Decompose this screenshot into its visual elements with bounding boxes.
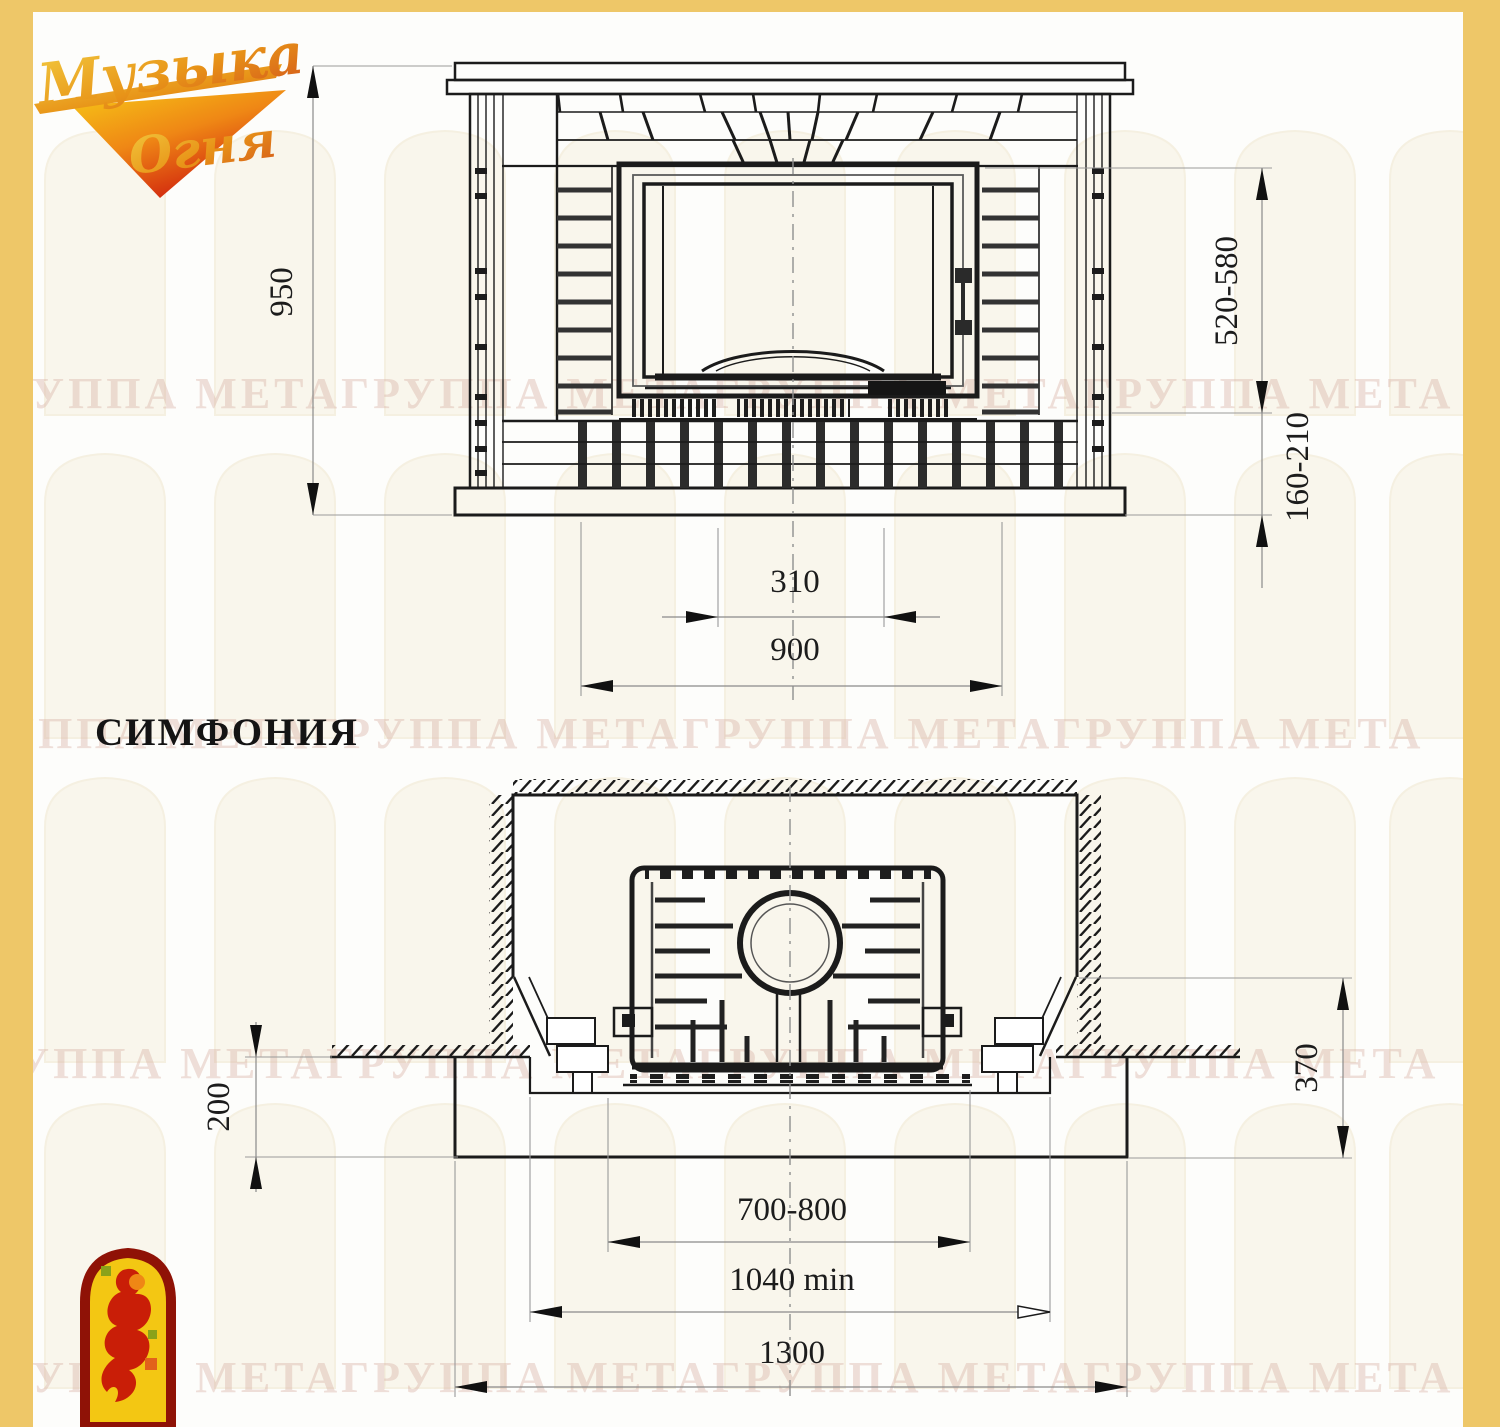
dim-body-width: 900 — [770, 632, 820, 668]
dim-hearth-front-depth: 200 — [201, 1082, 237, 1132]
footer-arch-logo — [85, 1253, 171, 1427]
dim-base-zone-height: 160-210 — [1280, 412, 1316, 522]
border-strip-right — [1463, 0, 1500, 1427]
vent-grille — [619, 397, 977, 419]
ash-lip — [868, 381, 946, 395]
dim-niche-min-width: 1040 min — [729, 1262, 855, 1298]
wall-hatch-top — [513, 779, 1077, 795]
dim-opening-width: 310 — [770, 564, 820, 600]
watermark-text: ГРУППА МЕТАГРУППА МЕТАГРУППА МЕТАГРУППА … — [0, 1353, 1454, 1402]
dim-hearth-width: 1300 — [759, 1335, 825, 1371]
border-strip-top — [0, 0, 1500, 12]
model-name-label: СИМФОНИЯ — [95, 711, 359, 754]
dim-rear-depth: 370 — [1289, 1043, 1325, 1093]
dim-insert-width: 700-800 — [737, 1192, 847, 1228]
dim-firebox-zone-height: 520-580 — [1209, 236, 1245, 346]
wall-hatch-left — [489, 795, 513, 1053]
plinth-lattice — [502, 421, 1078, 488]
border-strip-left — [0, 0, 33, 1427]
scanned-diagram-page: ГРУППА МЕТАГРУППА МЕТАГРУППА МЕТАГРУППА … — [0, 0, 1500, 1427]
wall-hatch-right — [1077, 795, 1101, 1053]
dim-overall-height: 950 — [264, 267, 300, 317]
